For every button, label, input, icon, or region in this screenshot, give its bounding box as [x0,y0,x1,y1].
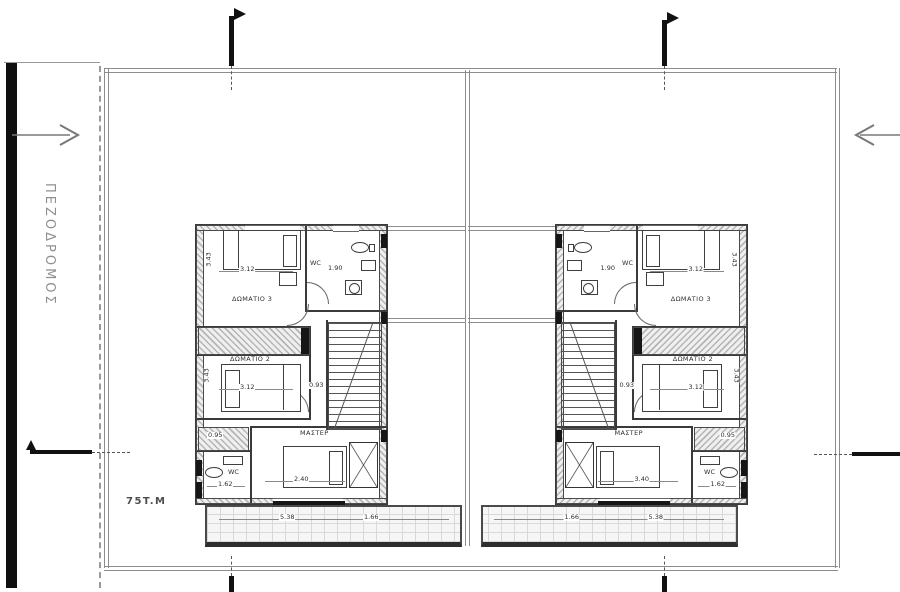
plot-divider-line [465,70,470,546]
right-house-plan: 3.12 3.43 ΔΩΜΑΤΙΟ 3 WC 1.90 ΔΩΜΑΤΙΟ 2 3.… [478,224,748,554]
dimension-label: 1.62 [710,481,726,488]
wall-jamb [196,482,202,498]
section-flag-icon [667,12,679,24]
dimension-label: 5.38 [279,514,295,521]
terrace [205,505,462,547]
partition-wc [636,226,638,310]
room2-label: ΔΩΜΑΤΙΟ 2 [229,356,271,363]
lot-boundary-right [835,68,840,568]
dimension-label: 1.90 [600,265,616,272]
room3-label: ΔΩΜΑΤΙΟ 3 [231,296,273,303]
toilet-tank-icon [568,244,574,252]
partition-wc-bottom [305,310,386,312]
partition-wc2-top [693,450,746,452]
partition-room2-bottom [634,418,746,420]
wardrobe-end-cap [301,328,309,354]
dimension-label: 3.12 [239,384,255,391]
window-top-2 [333,225,359,232]
wc-label: WC [621,260,634,267]
terrace [481,505,738,547]
shaft-cross-box [565,442,594,488]
dimension-line [219,271,293,272]
dimension-label: 3.43 [730,251,737,267]
stairs [328,322,382,430]
master-label: ΜΑΣΤΕΡ [613,430,644,437]
partition-stair [615,320,617,430]
floor-plan-drawing: ΠΕΖΟΔΡΟΜΟΣ 75T.M [0,0,900,592]
dimension-label: 3.43 [206,251,213,267]
dimension-line [219,519,449,520]
sink-icon [361,260,376,271]
street-name-label: ΠΕΖΟΔΡΟΜΟΣ [42,183,57,333]
toilet-tank-icon [369,244,375,252]
dimension-label: 0.95 [207,432,223,439]
lot-boundary-bottom [104,566,838,571]
window-top-2 [584,225,610,232]
master-label: ΜΑΣΤΕΡ [299,430,330,437]
partition-master-left [691,426,693,503]
partition-room2-bottom [197,418,309,420]
bed [223,230,301,270]
wall-jamb [381,234,387,248]
partition-corridor [309,326,311,420]
room2-label: ΔΩΜΑΤΙΟ 2 [672,356,714,363]
dimension-label: 3.12 [239,266,255,273]
lot-boundary-top [104,68,837,73]
left-house-plan: 3.12 3.43 ΔΩΜΑΤΙΟ 3 WC 1.90 ΔΩΜΑΤΙΟ 2 3.… [195,224,465,554]
section-flag-icon [26,440,36,450]
dimension-label: 2.40 [293,476,309,483]
section-marker-bottom-right [662,576,667,592]
dimension-label: 0.93 [308,382,324,389]
street-top-line [4,62,100,63]
wall-jamb [741,482,747,498]
washer-icon [345,280,362,295]
lot-boundary-left [104,68,109,568]
dimension-label: 3.12 [688,384,704,391]
wall-jamb [196,460,202,476]
washer-icon [581,280,598,295]
dimension-line [494,519,724,520]
section-marker-mid-right [852,452,900,456]
room3-label: ΔΩΜΑΤΙΟ 3 [670,296,712,303]
toilet-icon [205,467,223,478]
section-line-dashed [231,556,232,576]
wardrobe-end-cap [634,328,642,354]
bed [642,364,722,412]
sink-icon [567,260,582,271]
section-line-dashed [814,454,852,455]
partition-master-left [250,426,252,503]
section-line-dashed [92,452,130,453]
section-marker-mid-left [30,450,92,454]
dimension-label: 1.66 [564,514,580,521]
partition-wc2-top [197,450,250,452]
wc2-label: WC [227,469,240,476]
sidewalk-boundary-dashed-line [99,66,101,588]
wardrobe [634,328,744,354]
dimension-label: 0.93 [619,382,635,389]
dimension-label: 3.12 [688,266,704,273]
toilet-icon [351,242,369,253]
nightstand [279,272,297,286]
dimension-label: 1.62 [217,481,233,488]
dimension-label: 1.90 [327,265,343,272]
bed [221,364,301,412]
floor-area-label: 75T.M [126,496,166,507]
section-line-dashed [664,66,665,90]
wall-jamb [556,234,562,248]
sink-icon [700,456,720,465]
partition-wc-bottom [557,310,638,312]
wall-jamb [741,460,747,476]
dimension-label: 3.43 [204,367,211,383]
wc2-label: WC [703,469,716,476]
bed [642,230,720,270]
stairs [561,322,615,430]
nightstand [646,272,664,286]
wardrobe [199,328,309,354]
sink-icon [223,456,243,465]
dimension-label: 1.66 [363,514,379,521]
section-line-dashed [664,556,665,576]
section-line-dashed [231,66,232,90]
street-arrow-left-icon [848,122,900,148]
dimension-label: 3.43 [732,367,739,383]
wc-label: WC [309,260,322,267]
dimension-label: 5.38 [648,514,664,521]
section-marker-top-left [229,16,234,66]
dimension-line [219,389,293,390]
section-flag-icon [234,8,246,20]
toilet-icon [574,242,592,253]
wall-jamb [381,430,387,442]
section-marker-bottom-left [229,576,234,592]
dimension-label: 0.95 [720,432,736,439]
wall-jamb [556,430,562,442]
street-arrow-right-icon [12,122,88,148]
section-marker-top-right [662,20,667,66]
toilet-icon [720,467,738,478]
shaft-cross-box [349,442,378,488]
dimension-label: 3.40 [634,476,650,483]
